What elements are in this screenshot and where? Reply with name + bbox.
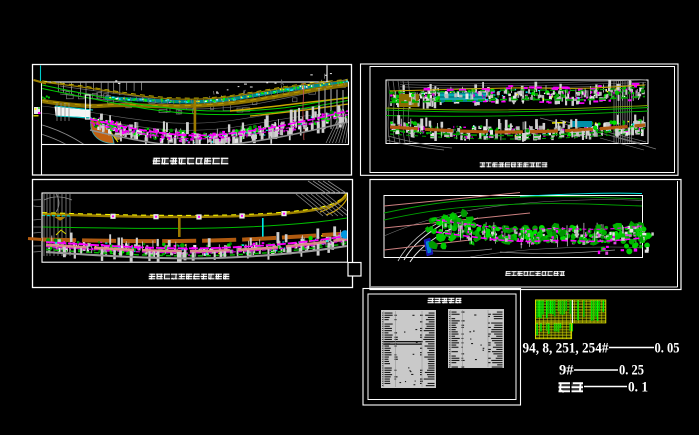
svg-text:94, 8, 251, 254#: 94, 8, 251, 254# — [523, 340, 609, 356]
svg-text:0. 25: 0. 25 — [619, 363, 644, 379]
svg-text:0. 1: 0. 1 — [628, 380, 648, 396]
svg-text:9#: 9# — [559, 363, 574, 379]
svg-text:0. 05: 0. 05 — [655, 340, 680, 356]
